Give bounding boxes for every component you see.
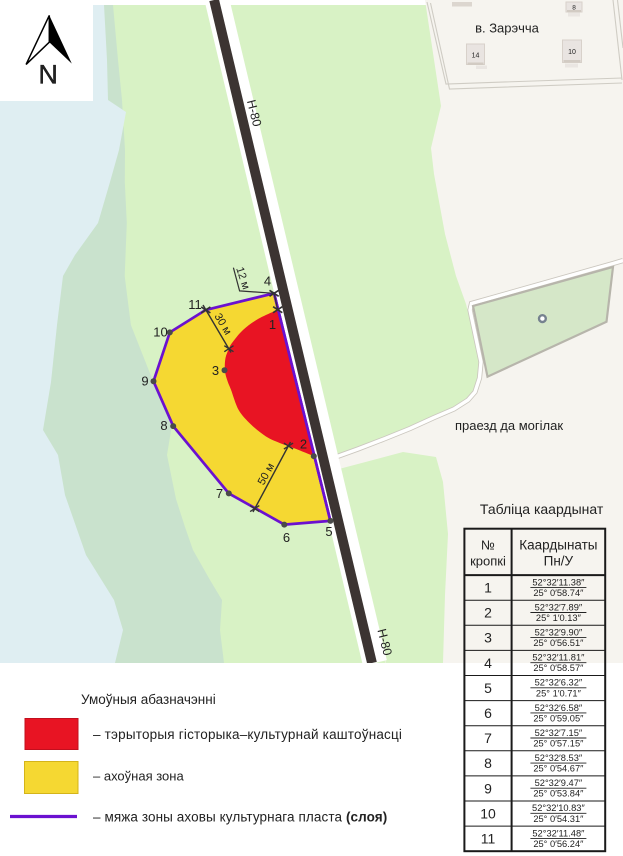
- svg-text:7: 7: [216, 486, 223, 501]
- svg-text:25° 0′57.15″: 25° 0′57.15″: [533, 739, 584, 749]
- svg-text:8: 8: [572, 5, 576, 12]
- svg-text:25° 1′0.71″: 25° 1′0.71″: [536, 688, 582, 698]
- svg-text:52°32′9.47″: 52°32′9.47″: [535, 778, 583, 788]
- svg-text:5: 5: [325, 524, 332, 539]
- svg-text:52°32′9.90″: 52°32′9.90″: [535, 628, 583, 638]
- svg-text:25° 0′54.31″: 25° 0′54.31″: [533, 814, 584, 824]
- svg-text:4: 4: [484, 655, 492, 671]
- svg-text:25° 0′54.67″: 25° 0′54.67″: [533, 764, 584, 774]
- svg-text:1: 1: [484, 580, 492, 596]
- svg-text:Умоўныя абазначэнні: Умоўныя абазначэнні: [81, 692, 216, 707]
- svg-text:N: N: [38, 60, 58, 90]
- svg-text:7: 7: [484, 730, 492, 746]
- svg-text:1: 1: [269, 317, 276, 332]
- svg-text:25° 0′56.24″: 25° 0′56.24″: [533, 839, 584, 849]
- svg-text:6: 6: [484, 705, 492, 721]
- svg-text:52°32′7.89″: 52°32′7.89″: [535, 602, 583, 612]
- svg-text:праезд да могілак: праезд да могілак: [455, 418, 563, 433]
- svg-text:кропкі: кропкі: [470, 554, 506, 569]
- svg-text:25° 1′0.13″: 25° 1′0.13″: [536, 613, 582, 623]
- svg-text:25° 0′59.05″: 25° 0′59.05″: [533, 713, 584, 723]
- svg-text:4: 4: [264, 274, 271, 289]
- svg-text:25° 0′58.57″: 25° 0′58.57″: [533, 663, 584, 673]
- svg-text:10: 10: [153, 325, 167, 340]
- svg-text:11: 11: [188, 297, 202, 312]
- svg-text:в. Зарэчча: в. Зарэчча: [475, 21, 540, 36]
- svg-text:№: №: [481, 538, 495, 553]
- svg-text:8: 8: [160, 418, 167, 433]
- svg-text:– тэрыторыя гісторыка–культурн: – тэрыторыя гісторыка–культурнай каштоўн…: [93, 727, 402, 742]
- svg-text:– ахоўная зона: – ахоўная зона: [93, 769, 184, 784]
- svg-text:52°32′8.53″: 52°32′8.53″: [535, 753, 583, 763]
- svg-text:9: 9: [484, 780, 492, 796]
- svg-text:9: 9: [141, 374, 148, 389]
- svg-text:25° 0′53.84″: 25° 0′53.84″: [533, 789, 584, 799]
- svg-text:10: 10: [568, 49, 576, 56]
- svg-text:– мяжа зоны аховы культурнага: – мяжа зоны аховы культурнага пласта (сл…: [93, 810, 387, 825]
- svg-text:52°32′10.83″: 52°32′10.83″: [532, 803, 585, 813]
- svg-text:52°32′11.48″: 52°32′11.48″: [532, 828, 585, 838]
- svg-text:5: 5: [484, 680, 492, 696]
- svg-text:11: 11: [481, 831, 496, 847]
- svg-text:14: 14: [472, 53, 480, 60]
- svg-text:Табліца каардынат: Табліца каардынат: [480, 501, 604, 517]
- svg-text:52°32′11.38″: 52°32′11.38″: [532, 577, 585, 587]
- svg-text:25° 0′58.74″: 25° 0′58.74″: [533, 588, 584, 598]
- svg-text:Пн/У: Пн/У: [544, 554, 574, 569]
- svg-text:8: 8: [484, 755, 492, 771]
- svg-text:2: 2: [484, 605, 492, 621]
- svg-text:3: 3: [484, 630, 492, 646]
- svg-text:10: 10: [480, 805, 496, 821]
- svg-text:52°32′7.15″: 52°32′7.15″: [535, 728, 583, 738]
- svg-text:3: 3: [212, 363, 219, 378]
- svg-text:52°32′6.58″: 52°32′6.58″: [535, 703, 583, 713]
- svg-text:25° 0′56.51″: 25° 0′56.51″: [533, 638, 584, 648]
- svg-text:Каардынаты: Каардынаты: [519, 538, 597, 553]
- svg-text:6: 6: [283, 530, 290, 545]
- svg-text:52°32′6.32″: 52°32′6.32″: [535, 678, 583, 688]
- svg-text:2: 2: [300, 437, 307, 452]
- svg-text:52°32′11.81″: 52°32′11.81″: [532, 653, 585, 663]
